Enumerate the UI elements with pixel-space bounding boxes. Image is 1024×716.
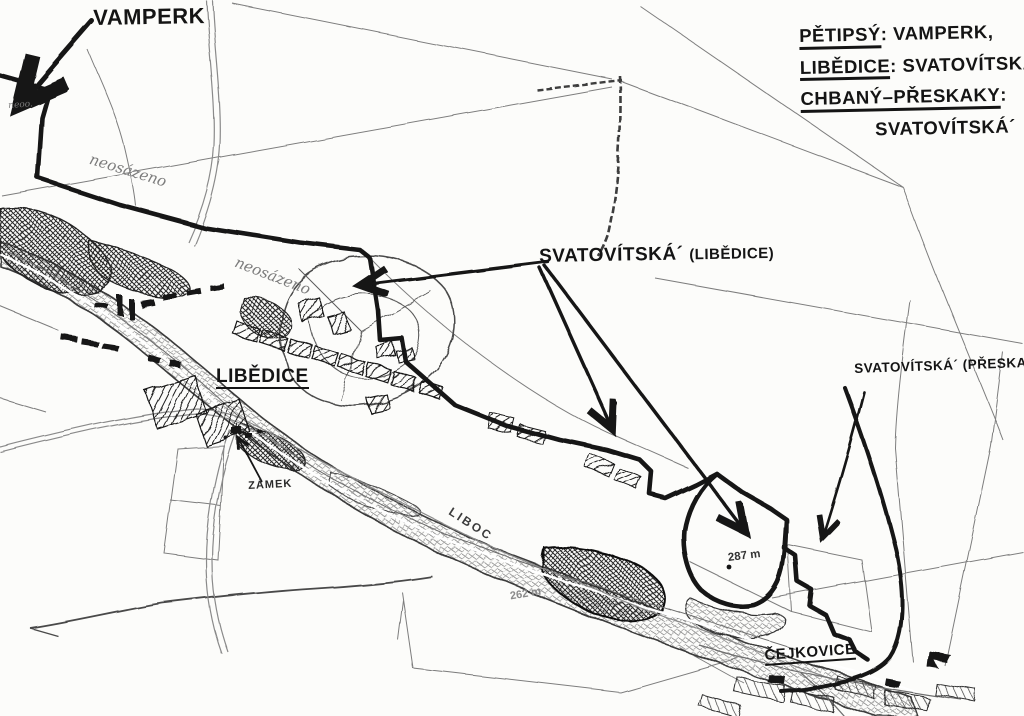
legend-line-3: CHBANÝ–PŘESKAKY: — [800, 85, 1024, 113]
road-sketchy — [598, 76, 621, 256]
side-stream — [30, 576, 432, 628]
village-name: LIBĚDICE — [216, 367, 309, 389]
label-vamperk: VAMPERK — [93, 5, 205, 29]
boundary-loop-287 — [684, 473, 786, 606]
street-name-qualifier: (LIBĚDICE) — [689, 245, 774, 263]
legend-term: CHBANÝ–PŘESKAKY — [800, 86, 1000, 113]
legend-line-2: LIBĚDICE: SVATOVÍTSKÁ´ — [800, 53, 1024, 81]
map-canvas: VAMPERK PĚTIPSÝ: VAMPERK, LIBĚDICE: SVAT… — [0, 0, 1024, 716]
road-south — [212, 432, 236, 652]
legend-term: LIBĚDICE — [800, 57, 891, 81]
label-village-libedice: LIBĚDICE — [216, 367, 309, 389]
note-small: neoo. — [8, 100, 33, 111]
label-zamek: ZÁMEK — [248, 479, 293, 492]
vamperk-arrow — [24, 21, 92, 100]
side-stream-fork — [30, 628, 58, 636]
legend-value: : VAMPERK, — [881, 21, 994, 44]
sv-libedice-arrow-right — [545, 266, 744, 530]
sv-libedice-arrow-mid — [540, 268, 612, 428]
legend-value: SVATOVÍTSKÁ´ — [875, 115, 1016, 139]
legend-value: : SVATOVÍTSKÁ´ — [890, 51, 1024, 75]
legend-value: : — [1000, 84, 1007, 105]
legend-note: PĚTIPSÝ: VAMPERK, LIBĚDICE: SVATOVÍTSKÁ´… — [799, 22, 1024, 149]
legend-term: PĚTIPSÝ — [799, 25, 881, 49]
sv-preskaky-arrow — [823, 392, 864, 536]
legend-line-1: PĚTIPSÝ: VAMPERK, — [799, 22, 1024, 50]
street-name: SVATOVÍTSKÁ´ — [539, 243, 684, 267]
elevation-point-287 — [727, 565, 732, 570]
river-valley — [0, 207, 918, 716]
sv-libedice-arrow-left — [362, 262, 548, 285]
road-sketchy-spur — [537, 80, 622, 90]
legend-line-4: SVATOVÍTSKÁ´ — [875, 116, 1024, 138]
